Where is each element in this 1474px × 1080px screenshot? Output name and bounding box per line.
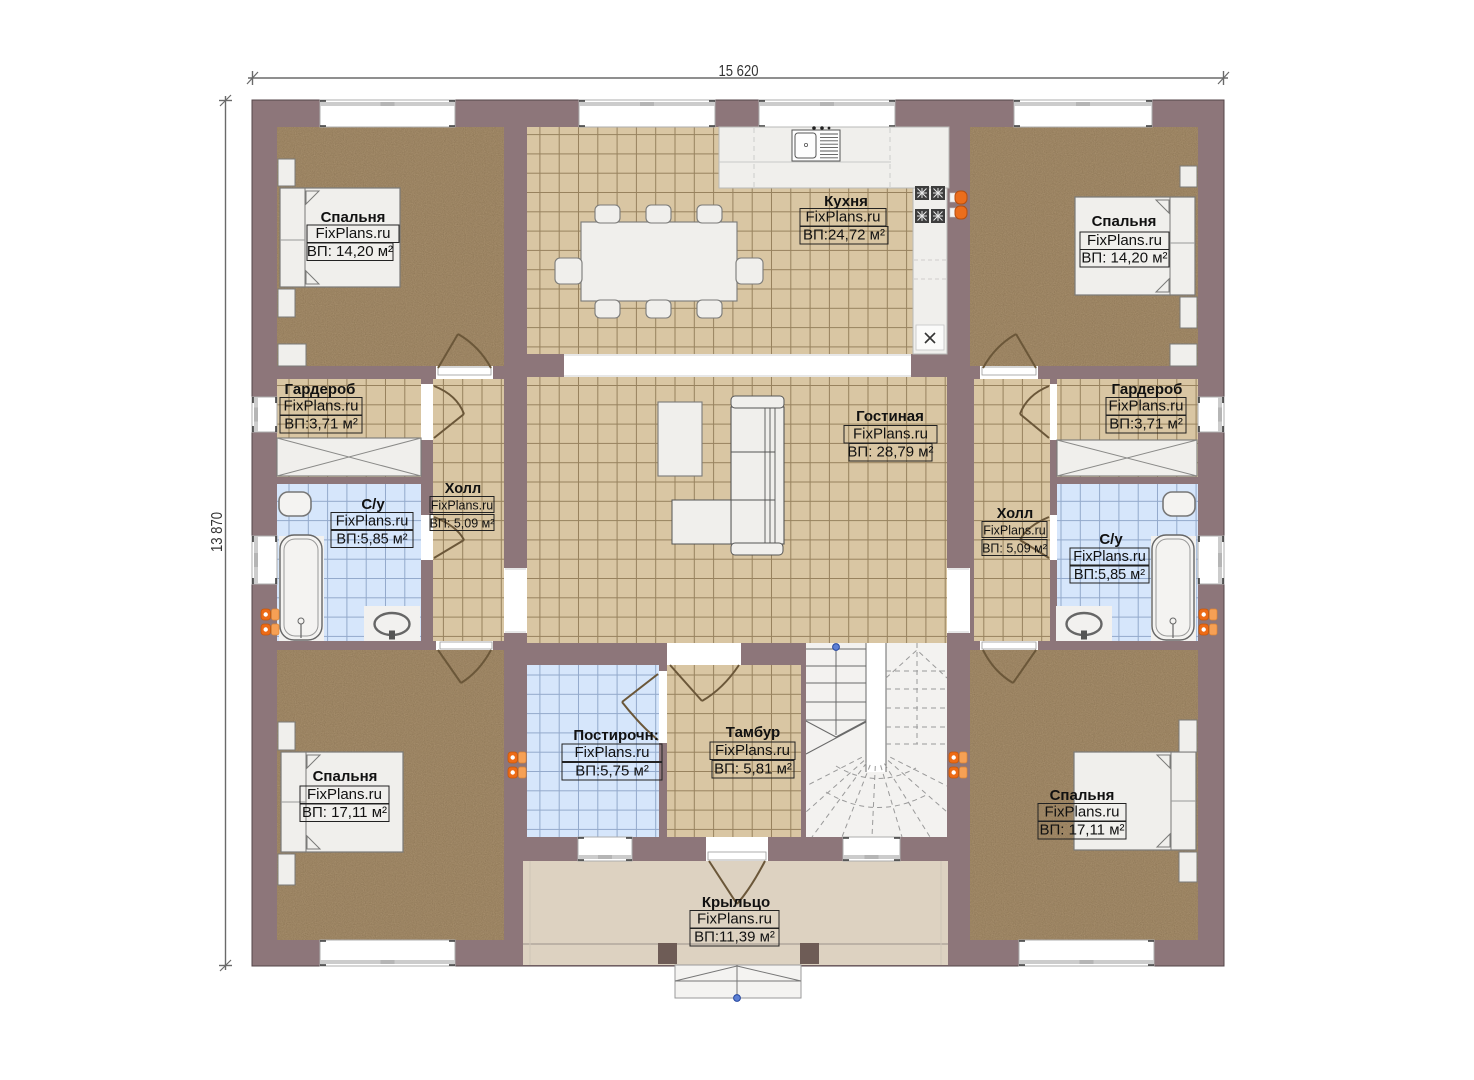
svg-text:FixPlans.ru: FixPlans.ru	[574, 744, 649, 761]
svg-text:FixPlans.ru: FixPlans.ru	[983, 524, 1046, 538]
svg-text:Крыльцо: Крыльцо	[702, 894, 770, 911]
svg-text:FixPlans.ru: FixPlans.ru	[315, 225, 390, 242]
svg-text:ВП: 5,81 м²: ВП: 5,81 м²	[714, 761, 792, 778]
svg-text:15 620: 15 620	[719, 63, 759, 80]
svg-text:ВП: 17,11 м²: ВП: 17,11 м²	[302, 804, 387, 821]
svg-text:С/у: С/у	[1099, 531, 1123, 548]
svg-text:FixPlans.ru: FixPlans.ru	[1073, 549, 1146, 565]
svg-text:FixPlans.ru: FixPlans.ru	[307, 786, 382, 803]
svg-text:FixPlans.ru: FixPlans.ru	[336, 514, 409, 530]
svg-text:Гардероб: Гардероб	[1112, 381, 1183, 398]
svg-text:FixPlans.ru: FixPlans.ru	[697, 911, 772, 928]
svg-text:ВП:3,71 м²: ВП:3,71 м²	[1109, 416, 1183, 433]
svg-text:ВП: 5,09 м²: ВП: 5,09 м²	[430, 517, 495, 531]
svg-text:Холл: Холл	[445, 481, 481, 497]
svg-text:Спальня: Спальня	[313, 768, 378, 785]
svg-text:ВП:5,85 м²: ВП:5,85 м²	[336, 532, 407, 548]
svg-text:FixPlans.ru: FixPlans.ru	[283, 398, 358, 415]
svg-text:13 870: 13 870	[209, 512, 226, 552]
svg-text:Тамбур: Тамбур	[726, 724, 780, 741]
svg-text:FixPlans.ru: FixPlans.ru	[431, 499, 494, 513]
svg-text:FixPlans.ru: FixPlans.ru	[805, 209, 880, 226]
svg-text:ВП: 5,09 м²: ВП: 5,09 м²	[982, 542, 1047, 556]
svg-text:С/у: С/у	[361, 496, 385, 513]
svg-text:Гостиная: Гостиная	[856, 408, 924, 425]
svg-text:Спальня: Спальня	[1092, 213, 1157, 230]
svg-text:ВП:5,85 м²: ВП:5,85 м²	[1074, 567, 1145, 583]
svg-text:FixPlans.ru: FixPlans.ru	[715, 742, 790, 759]
svg-text:ВП:24,72 м²: ВП:24,72 м²	[803, 227, 885, 244]
svg-text:ВП: 17,11 м²: ВП: 17,11 м²	[1039, 822, 1124, 839]
svg-text:ВП:5,75 м²: ВП:5,75 м²	[575, 763, 649, 780]
svg-text:Спальня: Спальня	[321, 209, 386, 226]
svg-text:ВП: 14,20 м²: ВП: 14,20 м²	[307, 243, 393, 260]
svg-text:Кухня: Кухня	[824, 193, 868, 210]
svg-text:ВП:11,39 м²: ВП:11,39 м²	[694, 929, 775, 946]
svg-text:FixPlans.ru: FixPlans.ru	[853, 426, 928, 443]
svg-text:Гардероб: Гардероб	[285, 381, 356, 398]
svg-text:Постирочн:: Постирочн:	[573, 727, 658, 744]
svg-text:ВП:3,71 м²: ВП:3,71 м²	[284, 416, 358, 433]
svg-text:ВП: 14,20 м²: ВП: 14,20 м²	[1081, 250, 1167, 267]
svg-text:ВП: 28,79 м²: ВП: 28,79 м²	[847, 444, 933, 461]
svg-text:Спальня: Спальня	[1050, 787, 1115, 804]
svg-text:Холл: Холл	[997, 506, 1033, 522]
svg-text:FixPlans.ru: FixPlans.ru	[1087, 232, 1162, 249]
svg-text:FixPlans.ru: FixPlans.ru	[1044, 804, 1119, 821]
svg-text:FixPlans.ru: FixPlans.ru	[1108, 398, 1183, 415]
